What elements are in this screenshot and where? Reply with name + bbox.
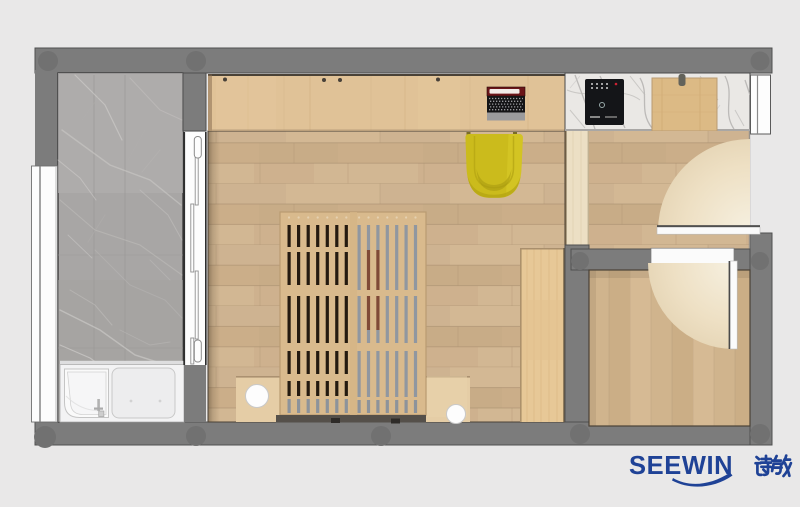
svg-text:SEEWIN: SEEWIN	[629, 452, 733, 480]
